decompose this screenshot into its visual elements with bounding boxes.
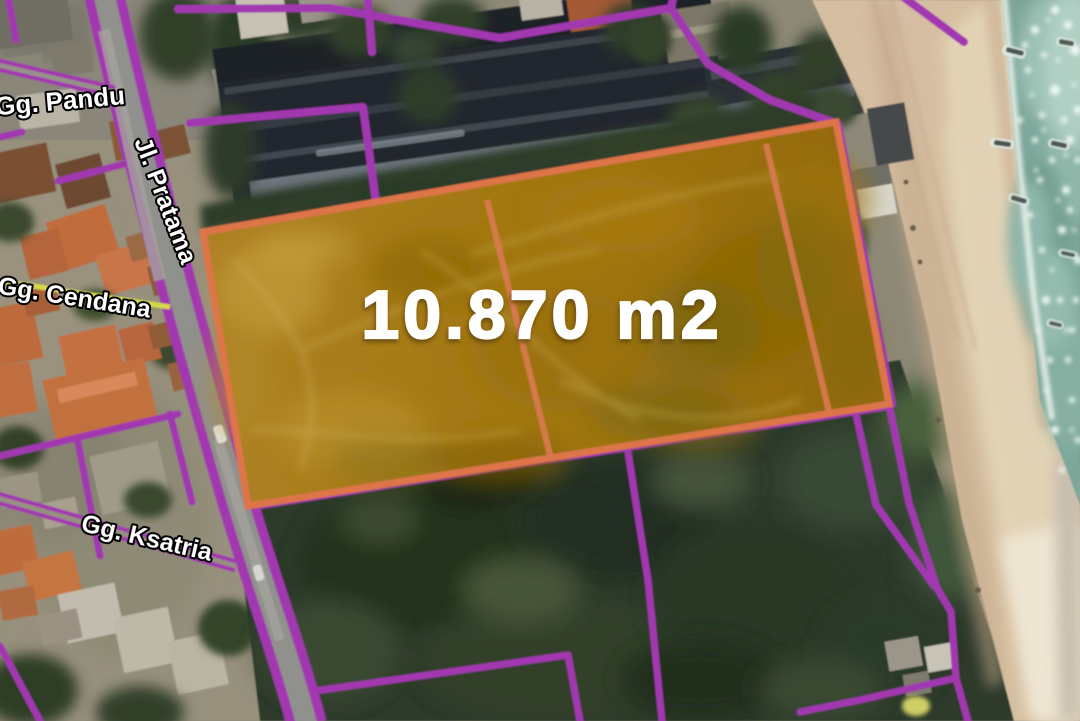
- svg-text:10.870 m2: 10.870 m2: [361, 277, 722, 353]
